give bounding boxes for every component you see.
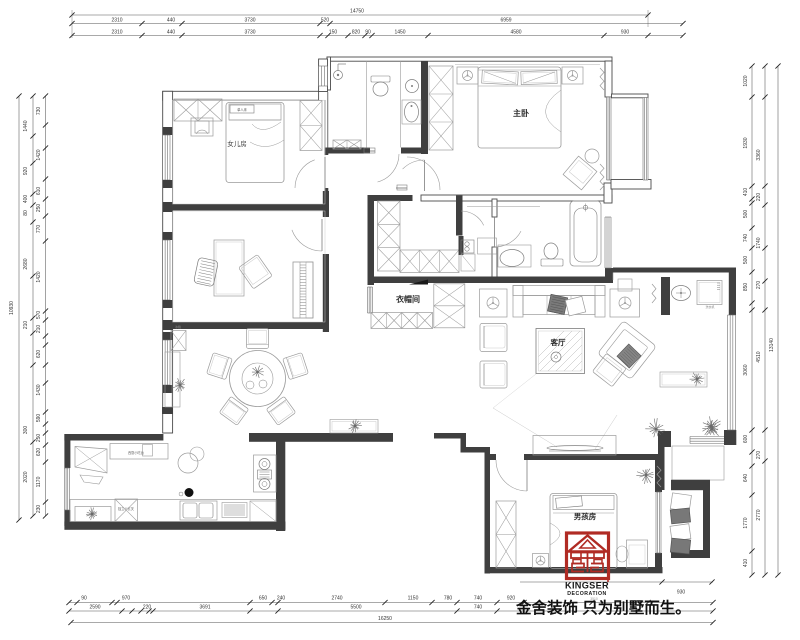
svg-text:西厨小吃台: 西厨小吃台 bbox=[128, 450, 144, 455]
svg-text:3360: 3360 bbox=[756, 149, 762, 160]
svg-text:80: 80 bbox=[23, 210, 29, 216]
svg-text:440: 440 bbox=[167, 30, 176, 36]
svg-text:270: 270 bbox=[756, 281, 762, 290]
svg-text:1930: 1930 bbox=[743, 137, 749, 148]
svg-text:920: 920 bbox=[507, 596, 516, 602]
svg-text:1420: 1420 bbox=[36, 271, 42, 282]
svg-text:1770: 1770 bbox=[743, 517, 749, 528]
svg-text:410: 410 bbox=[743, 559, 749, 568]
svg-text:250: 250 bbox=[36, 434, 42, 443]
svg-text:14750: 14750 bbox=[350, 9, 364, 15]
svg-text:3730: 3730 bbox=[244, 18, 255, 24]
svg-text:洗衣机: 洗衣机 bbox=[705, 304, 714, 309]
svg-text:男孩房: 男孩房 bbox=[574, 511, 597, 521]
svg-text:220: 220 bbox=[143, 605, 152, 611]
svg-text:主卧: 主卧 bbox=[513, 108, 529, 118]
svg-text:230: 230 bbox=[36, 505, 42, 514]
svg-text:女儿房: 女儿房 bbox=[227, 139, 247, 148]
svg-text:3730: 3730 bbox=[244, 30, 255, 36]
svg-text:770: 770 bbox=[36, 225, 42, 234]
svg-text:640: 640 bbox=[743, 474, 749, 483]
svg-text:240: 240 bbox=[277, 596, 286, 602]
svg-text:740: 740 bbox=[474, 596, 483, 602]
svg-text:2590: 2590 bbox=[89, 605, 100, 611]
svg-text:500: 500 bbox=[743, 256, 749, 265]
svg-text:410: 410 bbox=[743, 188, 749, 197]
svg-text:620: 620 bbox=[36, 448, 42, 457]
svg-text:16250: 16250 bbox=[378, 616, 392, 622]
svg-text:930: 930 bbox=[621, 30, 630, 36]
svg-text:820: 820 bbox=[352, 30, 361, 36]
svg-text:780: 780 bbox=[444, 596, 453, 602]
svg-text:250: 250 bbox=[36, 204, 42, 213]
svg-text:500: 500 bbox=[743, 210, 749, 219]
svg-text:1420: 1420 bbox=[36, 149, 42, 160]
svg-text:440: 440 bbox=[167, 18, 176, 24]
svg-text:KINGSER: KINGSER bbox=[565, 581, 609, 591]
svg-text:90: 90 bbox=[365, 30, 371, 36]
svg-text:620: 620 bbox=[36, 350, 42, 359]
svg-text:150: 150 bbox=[329, 30, 338, 36]
svg-text:300: 300 bbox=[23, 426, 29, 435]
svg-text:1150: 1150 bbox=[408, 596, 419, 602]
svg-text:1020: 1020 bbox=[743, 75, 749, 86]
svg-text:2740: 2740 bbox=[331, 596, 342, 602]
svg-text:2770: 2770 bbox=[756, 509, 762, 520]
svg-text:590: 590 bbox=[36, 414, 42, 423]
svg-text:220: 220 bbox=[756, 193, 762, 202]
svg-text:客厅: 客厅 bbox=[550, 337, 566, 347]
svg-text:5500: 5500 bbox=[350, 605, 361, 611]
svg-text:3060: 3060 bbox=[743, 364, 749, 375]
svg-text:1740: 1740 bbox=[756, 237, 762, 248]
svg-text:2680: 2680 bbox=[23, 258, 29, 269]
svg-text:金舍装饰 只为别墅而生。: 金舍装饰 只为别墅而生。 bbox=[515, 598, 691, 617]
svg-text:740: 740 bbox=[743, 234, 749, 243]
svg-text:210: 210 bbox=[36, 325, 42, 334]
svg-text:DECORATION: DECORATION bbox=[567, 591, 607, 597]
svg-text:13140: 13140 bbox=[769, 338, 775, 352]
svg-text:210: 210 bbox=[23, 321, 29, 330]
svg-text:610: 610 bbox=[36, 187, 42, 196]
svg-text:270: 270 bbox=[756, 451, 762, 460]
svg-text:2310: 2310 bbox=[111, 18, 122, 24]
svg-text:740: 740 bbox=[474, 605, 483, 611]
svg-text:730: 730 bbox=[36, 107, 42, 116]
svg-text:1450: 1450 bbox=[394, 30, 405, 36]
svg-text:2020: 2020 bbox=[23, 471, 29, 482]
svg-text:1440: 1440 bbox=[23, 120, 29, 131]
svg-text:650: 650 bbox=[259, 596, 268, 602]
svg-text:600: 600 bbox=[743, 435, 749, 444]
svg-text:1430: 1430 bbox=[36, 384, 42, 395]
svg-text:冰箱: 冰箱 bbox=[175, 324, 181, 329]
svg-text:570: 570 bbox=[36, 311, 42, 320]
svg-text:850: 850 bbox=[743, 283, 749, 292]
svg-text:衣帽间: 衣帽间 bbox=[396, 294, 420, 304]
svg-text:920: 920 bbox=[23, 167, 29, 176]
svg-text:2310: 2310 bbox=[111, 30, 122, 36]
svg-text:6959: 6959 bbox=[500, 18, 511, 24]
svg-text:单人床: 单人床 bbox=[237, 107, 247, 112]
svg-text:1170: 1170 bbox=[36, 476, 42, 487]
svg-text:90: 90 bbox=[81, 596, 87, 602]
svg-text:930: 930 bbox=[677, 590, 686, 596]
svg-text:3691: 3691 bbox=[199, 605, 210, 611]
svg-text:970: 970 bbox=[122, 596, 131, 602]
svg-text:4510: 4510 bbox=[756, 351, 762, 362]
svg-text:400: 400 bbox=[23, 195, 29, 204]
svg-text:4580: 4580 bbox=[510, 30, 521, 36]
svg-text:10930: 10930 bbox=[9, 301, 15, 315]
svg-text:520: 520 bbox=[321, 18, 330, 24]
